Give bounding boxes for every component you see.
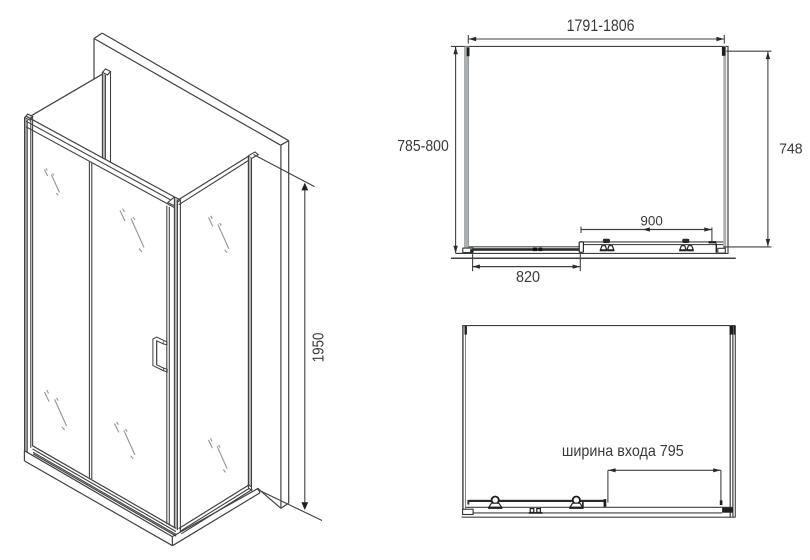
- svg-text:820: 820: [516, 269, 540, 286]
- svg-text:1950: 1950: [310, 333, 327, 363]
- svg-text:785-800: 785-800: [397, 138, 449, 155]
- svg-text:1791-1806: 1791-1806: [567, 16, 635, 35]
- svg-text:748: 748: [779, 142, 803, 158]
- svg-text:ширина входа 795: ширина входа 795: [562, 443, 684, 460]
- svg-text:900: 900: [640, 213, 663, 229]
